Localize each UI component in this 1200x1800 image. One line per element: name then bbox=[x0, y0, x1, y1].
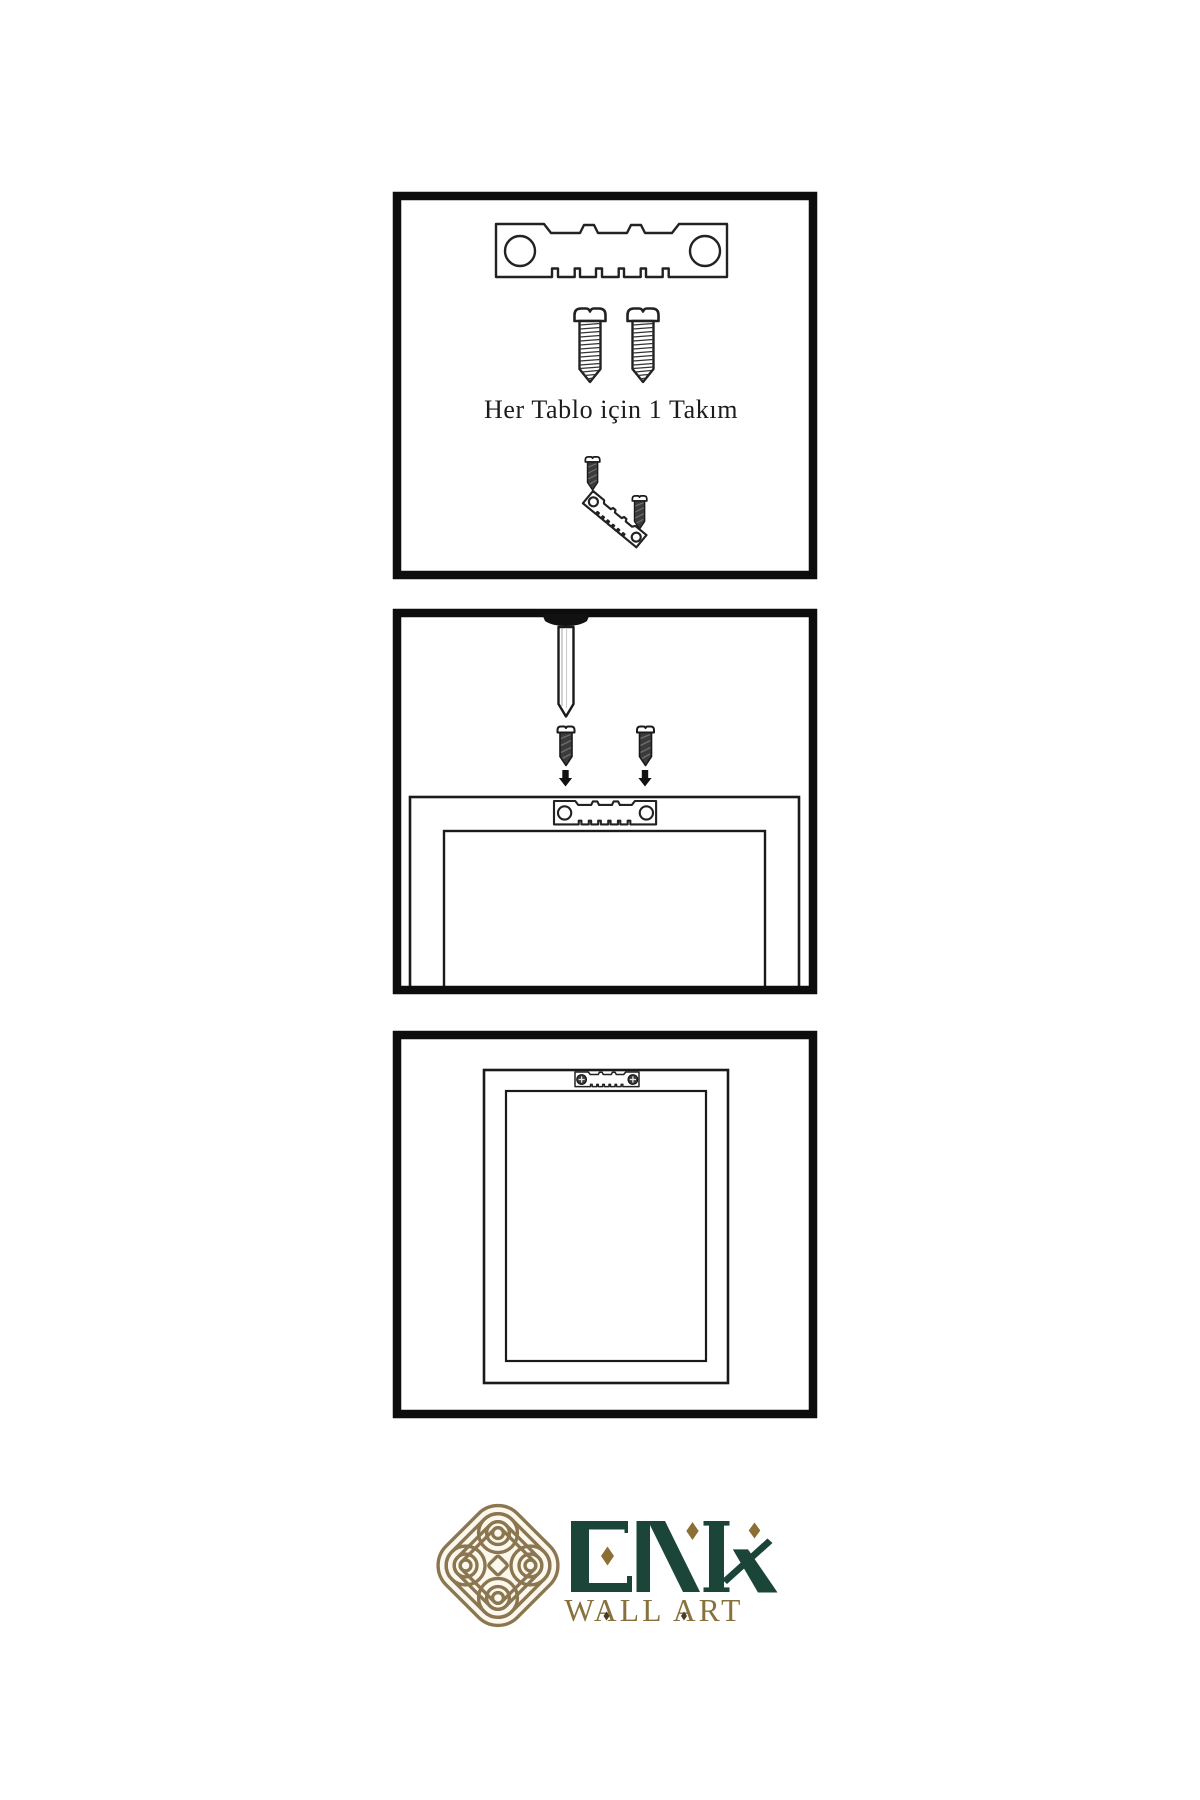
svg-text:Her Tablo için 1 Takım: Her Tablo için 1 Takım bbox=[484, 395, 738, 424]
svg-text:WALL ART: WALL ART bbox=[564, 1593, 743, 1628]
